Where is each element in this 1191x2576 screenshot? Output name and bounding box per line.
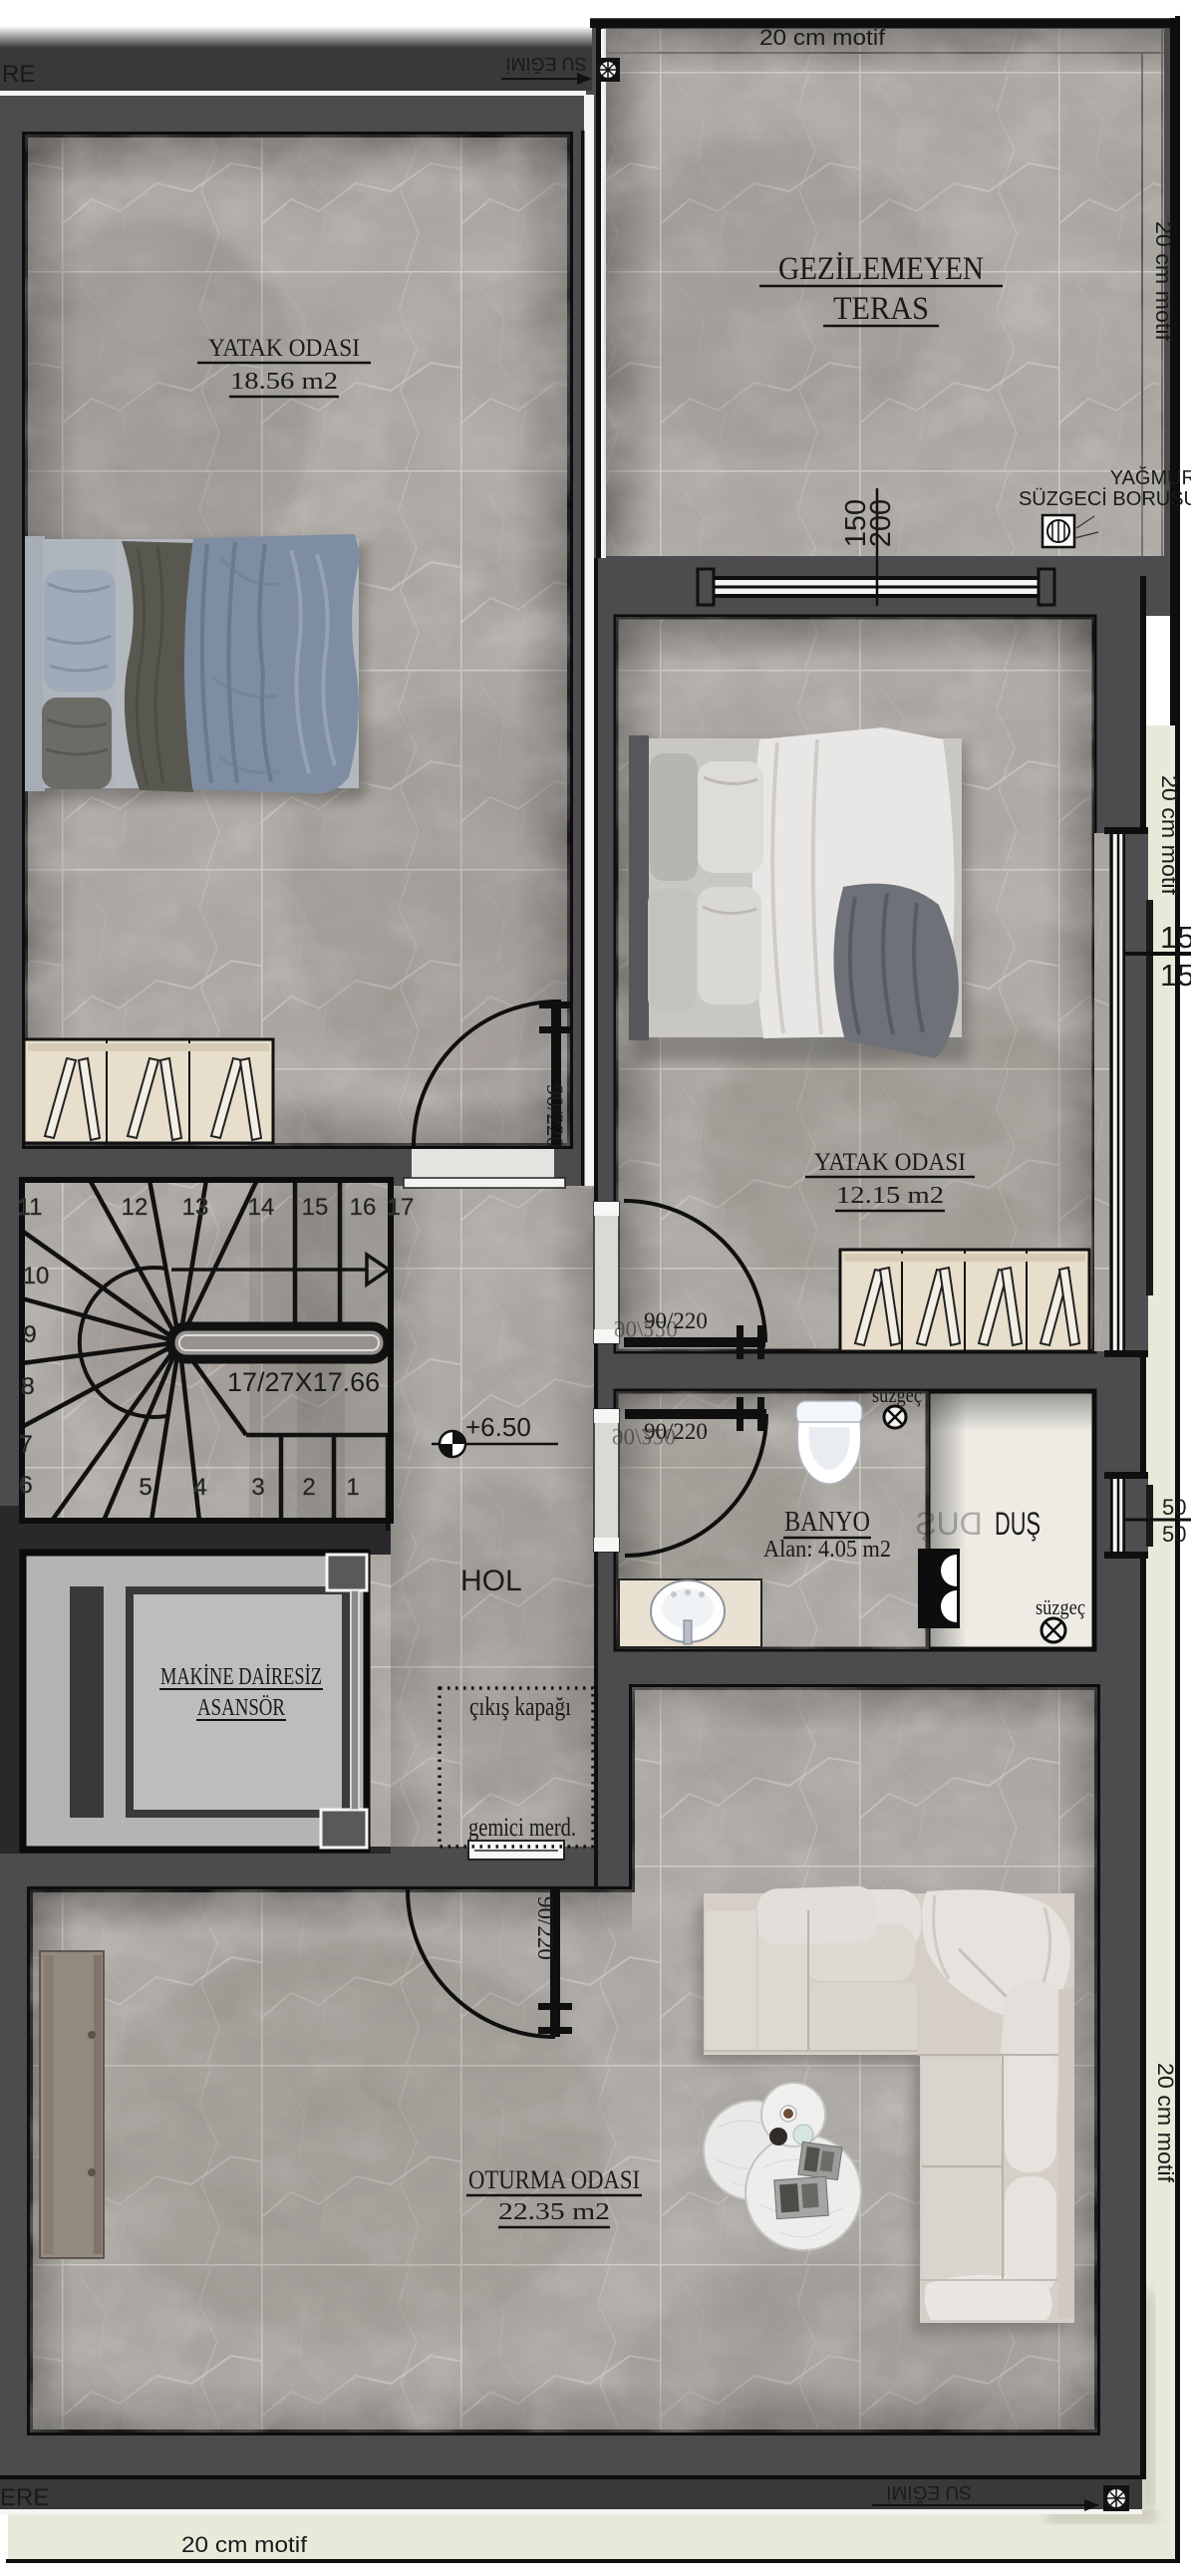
svg-text:14: 14: [248, 1194, 275, 1221]
svg-text:Alan: 4.05 m2: Alan: 4.05 m2: [763, 1537, 891, 1563]
svg-text:YATAK ODASI: YATAK ODASI: [814, 1149, 966, 1176]
svg-text:20 cm motif: 20 cm motif: [1151, 221, 1176, 342]
svg-text:DUŞ: DUŞ: [915, 1506, 983, 1542]
svg-text:HOL: HOL: [460, 1565, 522, 1597]
svg-text:18.56 m2: 18.56 m2: [230, 369, 338, 395]
svg-text:20 cm motif: 20 cm motif: [1157, 775, 1182, 896]
svg-text:6: 6: [19, 1472, 32, 1499]
svg-text:4: 4: [193, 1474, 206, 1501]
svg-text:MAKİNE DAİRESİZ: MAKİNE DAİRESİZ: [160, 1664, 322, 1690]
svg-text:DUŞ: DUŞ: [995, 1506, 1041, 1542]
svg-text:5: 5: [139, 1474, 151, 1501]
svg-text:90/220: 90/220: [612, 1424, 676, 1449]
svg-text:10: 10: [23, 1263, 50, 1289]
svg-text:90/220: 90/220: [533, 1896, 558, 1960]
svg-text:YATAK ODASI: YATAK ODASI: [208, 335, 360, 362]
svg-text:2: 2: [302, 1474, 315, 1501]
svg-text:gemici merd.: gemici merd.: [468, 1813, 576, 1842]
svg-text:50: 50: [1162, 1522, 1186, 1547]
svg-text:15: 15: [1160, 958, 1191, 993]
svg-text:OTURMA ODASI: OTURMA ODASI: [468, 2165, 640, 2194]
svg-text:YAĞMUR: YAĞMUR: [1110, 466, 1191, 489]
svg-text:20 cm motif: 20 cm motif: [181, 2532, 308, 2557]
svg-text:BANYO: BANYO: [784, 1506, 870, 1538]
svg-text:20 cm motif: 20 cm motif: [759, 25, 886, 50]
svg-text:+6.50: +6.50: [465, 1412, 531, 1442]
svg-text:3: 3: [251, 1474, 264, 1501]
svg-text:8: 8: [21, 1373, 34, 1400]
svg-text:SÜZGECİ BORUSU: SÜZGECİ BORUSU: [1019, 487, 1191, 510]
svg-text:süzgeç: süzgeç: [1036, 1594, 1085, 1619]
svg-text:ERE: ERE: [0, 2484, 49, 2511]
svg-text:9: 9: [23, 1321, 36, 1348]
svg-text:1: 1: [346, 1474, 359, 1501]
svg-text:16: 16: [350, 1194, 377, 1221]
svg-text:50: 50: [1162, 1495, 1186, 1520]
svg-text:7: 7: [19, 1431, 32, 1458]
svg-text:çıkış kapağı: çıkış kapağı: [469, 1692, 571, 1721]
svg-text:SU EĞİMİ: SU EĞİMİ: [505, 54, 586, 75]
svg-text:15: 15: [1160, 920, 1191, 955]
svg-text:90/220: 90/220: [542, 1084, 567, 1148]
svg-text:17/27X17.66: 17/27X17.66: [227, 1367, 380, 1397]
svg-text:süzgeç: süzgeç: [872, 1382, 922, 1407]
svg-text:17: 17: [388, 1194, 415, 1221]
svg-text:90/220: 90/220: [614, 1316, 678, 1341]
svg-text:150: 150: [840, 499, 872, 547]
svg-text:20 cm motif: 20 cm motif: [1153, 2063, 1178, 2183]
svg-text:RE: RE: [2, 61, 35, 88]
svg-text:12: 12: [122, 1194, 149, 1221]
svg-text:13: 13: [182, 1194, 209, 1221]
svg-text:GEZİLEMEYEN: GEZİLEMEYEN: [778, 251, 984, 287]
svg-text:12.15 m2: 12.15 m2: [836, 1183, 944, 1209]
svg-text:SU EĞİMİ: SU EĞİMİ: [886, 2481, 972, 2503]
svg-text:11: 11: [18, 1194, 43, 1221]
svg-text:15: 15: [302, 1194, 329, 1221]
svg-text:TERAS: TERAS: [833, 291, 929, 327]
svg-text:22.35 m2: 22.35 m2: [498, 2199, 610, 2225]
svg-text:ASANSÖR: ASANSÖR: [197, 1695, 285, 1721]
